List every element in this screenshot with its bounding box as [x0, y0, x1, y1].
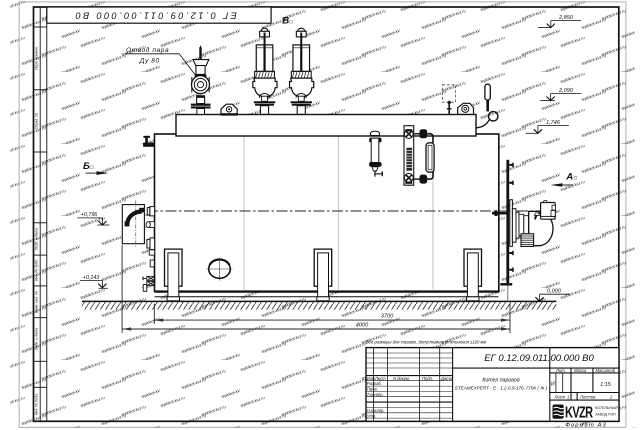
svg-text:Утв.: Утв.	[367, 413, 377, 418]
svg-text:+0,796: +0,796	[81, 212, 98, 218]
svg-text:3700: 3700	[381, 314, 394, 320]
svg-text:N докум.: N докум.	[393, 376, 410, 381]
svg-text:И: И	[551, 382, 555, 388]
svg-text:Дата: Дата	[440, 376, 453, 381]
svg-text:Лит.: Лит.	[555, 368, 566, 373]
svg-text:ЕГ 0.12.09.011.00.000 В0: ЕГ 0.12.09.011.00.000 В0	[73, 10, 237, 20]
svg-text:Инв. № подл.: Инв. № подл.	[35, 393, 39, 415]
svg-text:Лист: Лист	[374, 376, 386, 381]
svg-text:2,850: 2,850	[558, 15, 574, 21]
svg-text:Т.контр.: Т.контр.	[367, 392, 384, 397]
svg-text:Масса: Масса	[574, 368, 587, 373]
svg-text:Б: Б	[83, 161, 90, 172]
svg-text:1:15: 1:15	[600, 382, 612, 388]
svg-text:Пров.: Пров.	[367, 387, 378, 392]
svg-text:Подп. и дата: Подп. и дата	[35, 328, 39, 351]
svg-text:STEAMEXPERT - Е - 1,2-0,9-170-: STEAMEXPERT - Е - 1,2-0,9-170- ГЛЖ ( Ж )	[455, 386, 548, 391]
svg-text:0,000: 0,000	[547, 289, 562, 295]
svg-text:А: А	[565, 172, 573, 183]
svg-text:Масштаб: Масштаб	[596, 368, 616, 373]
svg-text:+0,143: +0,143	[83, 275, 100, 281]
svg-text:В: В	[282, 15, 289, 26]
svg-text:2,090: 2,090	[558, 88, 574, 94]
svg-text:Отвод пара: Отвод пара	[126, 46, 169, 54]
svg-text:ЗАВОД РЭП: ЗАВОД РЭП	[595, 413, 616, 417]
svg-text:Ду 80: Ду 80	[139, 57, 160, 64]
svg-text:Разраб.: Разраб.	[367, 381, 382, 386]
svg-text:Справ. №: Справ. №	[35, 113, 39, 129]
svg-text:Подп.: Подп.	[422, 376, 433, 381]
svg-text:KVZR: KVZR	[565, 405, 593, 422]
svg-text:КОТЕЛЬНЫЙ: КОТЕЛЬНЫЙ	[595, 406, 618, 410]
svg-text:4000: 4000	[356, 323, 369, 329]
svg-text:Все размеры для справок, допус: Все размеры для справок, допустимые откл…	[366, 339, 486, 344]
svg-text:Котел паровой: Котел паровой	[482, 377, 519, 384]
svg-text:Перв. примен.: Перв. примен.	[35, 46, 39, 70]
svg-text:Лист: Лист	[554, 394, 566, 399]
svg-text:ЕГ 0.12.09.011.00.000 В0: ЕГ 0.12.09.011.00.000 В0	[484, 353, 594, 364]
svg-text:Взам. инв. №: Взам. инв. №	[35, 291, 39, 313]
svg-text:Листов: Листов	[579, 394, 596, 399]
svg-text:1,746: 1,746	[546, 120, 561, 126]
svg-text:1: 1	[567, 394, 569, 399]
svg-text:Подп. и дата: Подп. и дата	[35, 228, 39, 251]
svg-text:Инв. № дубл.: Инв. № дубл.	[35, 259, 39, 281]
svg-text:Формат А3: Формат А3	[565, 423, 607, 429]
svg-text:Н.контр.: Н.контр.	[367, 408, 385, 413]
